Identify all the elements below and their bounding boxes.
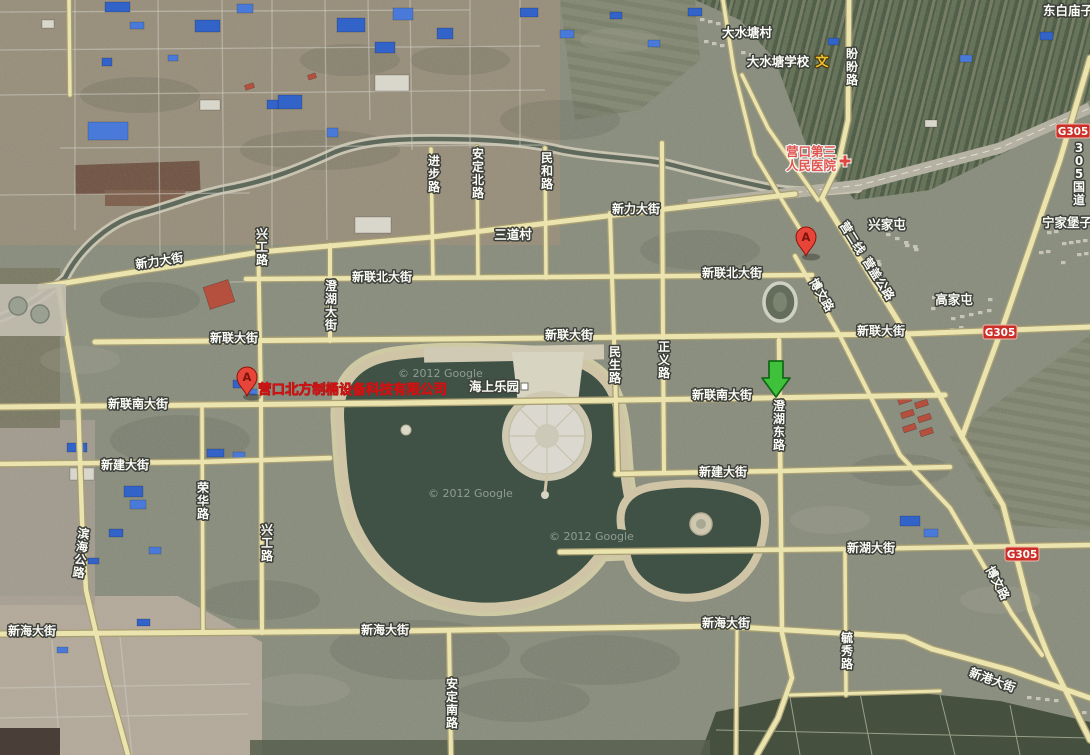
road-label: 新力大街 — [612, 201, 660, 216]
road-label: 毓秀路 — [840, 630, 854, 671]
road-label: 新联大街 — [545, 327, 593, 342]
watermark: © 2012 Google — [549, 530, 634, 543]
road-label: 安定南路 — [446, 676, 459, 730]
svg-text:G305: G305 — [1058, 126, 1089, 138]
road-label: 新海大街 — [702, 615, 750, 630]
road-label: 新联大街 — [210, 330, 258, 345]
village-label: 三道村 — [494, 227, 532, 242]
svg-text:G305: G305 — [1007, 549, 1038, 561]
map-canvas[interactable]: © 2012 Google© 2012 Google© 2012 Google新… — [0, 0, 1090, 755]
village-label: 高家屯 — [935, 292, 973, 307]
village-label: 东白庙子 — [1043, 3, 1090, 18]
road-label: 新建大街 — [699, 464, 747, 479]
road-label: 新联北大街 — [352, 269, 412, 284]
road-label: 新联南大街 — [692, 387, 752, 402]
road-label: 盼盼路 — [846, 47, 859, 87]
hospital-label: 人民医院 — [786, 158, 837, 173]
road-label: 新联大街 — [857, 323, 905, 338]
road-label: 新联北大街 — [702, 265, 762, 280]
road-label: 新联南大街 — [108, 396, 168, 411]
road-label: 澄湖东路 — [773, 398, 786, 452]
road-label: 新建大街 — [101, 457, 149, 472]
company-label: 营口北方制桶设备科技有限公司 — [258, 381, 447, 398]
school-icon: 文 — [815, 54, 829, 70]
road-label: 兴工路 — [256, 226, 269, 267]
road-label: 进步路 — [428, 153, 441, 194]
route-badge-g305: G305 — [1056, 124, 1090, 138]
road — [736, 628, 737, 755]
pin-letter: A — [802, 230, 811, 244]
road-label: 安定北路 — [472, 146, 485, 200]
road — [69, 0, 70, 95]
road-label: 民生路 — [609, 345, 622, 385]
road-label: 新海大街 — [8, 623, 56, 638]
road-label: 正义路 — [657, 340, 671, 380]
park-label: 海上乐园 — [469, 379, 519, 394]
road-label: 新海大街 — [361, 622, 409, 637]
park-icon — [521, 383, 528, 390]
school-label: 大水塘学校 — [747, 54, 810, 69]
road — [662, 143, 664, 472]
satellite-map[interactable]: © 2012 Google© 2012 Google© 2012 Google新… — [0, 0, 1090, 755]
road-label: 新湖大街 — [847, 540, 895, 555]
svg-text:G305: G305 — [985, 327, 1016, 339]
pin-letter: A — [243, 370, 252, 384]
route-badge-g305: G305 — [1005, 547, 1039, 561]
road-label: 荣华路 — [196, 480, 210, 521]
road-label: 民和路 — [540, 151, 554, 191]
road-label: 兴工路 — [261, 522, 274, 563]
pin-shadow — [802, 254, 820, 261]
village-label: 宁家堡子 — [1042, 215, 1090, 230]
route-badge-g305: G305 — [983, 325, 1017, 339]
hospital-label: 营口第三 — [786, 144, 836, 159]
village-label: 大水塘村 — [722, 25, 773, 40]
pin-shadow — [243, 394, 261, 401]
road-label: 澄湖大街 — [324, 278, 338, 332]
watermark: © 2012 Google — [428, 487, 513, 500]
road — [845, 552, 846, 695]
village-label: 兴家屯 — [868, 217, 906, 232]
